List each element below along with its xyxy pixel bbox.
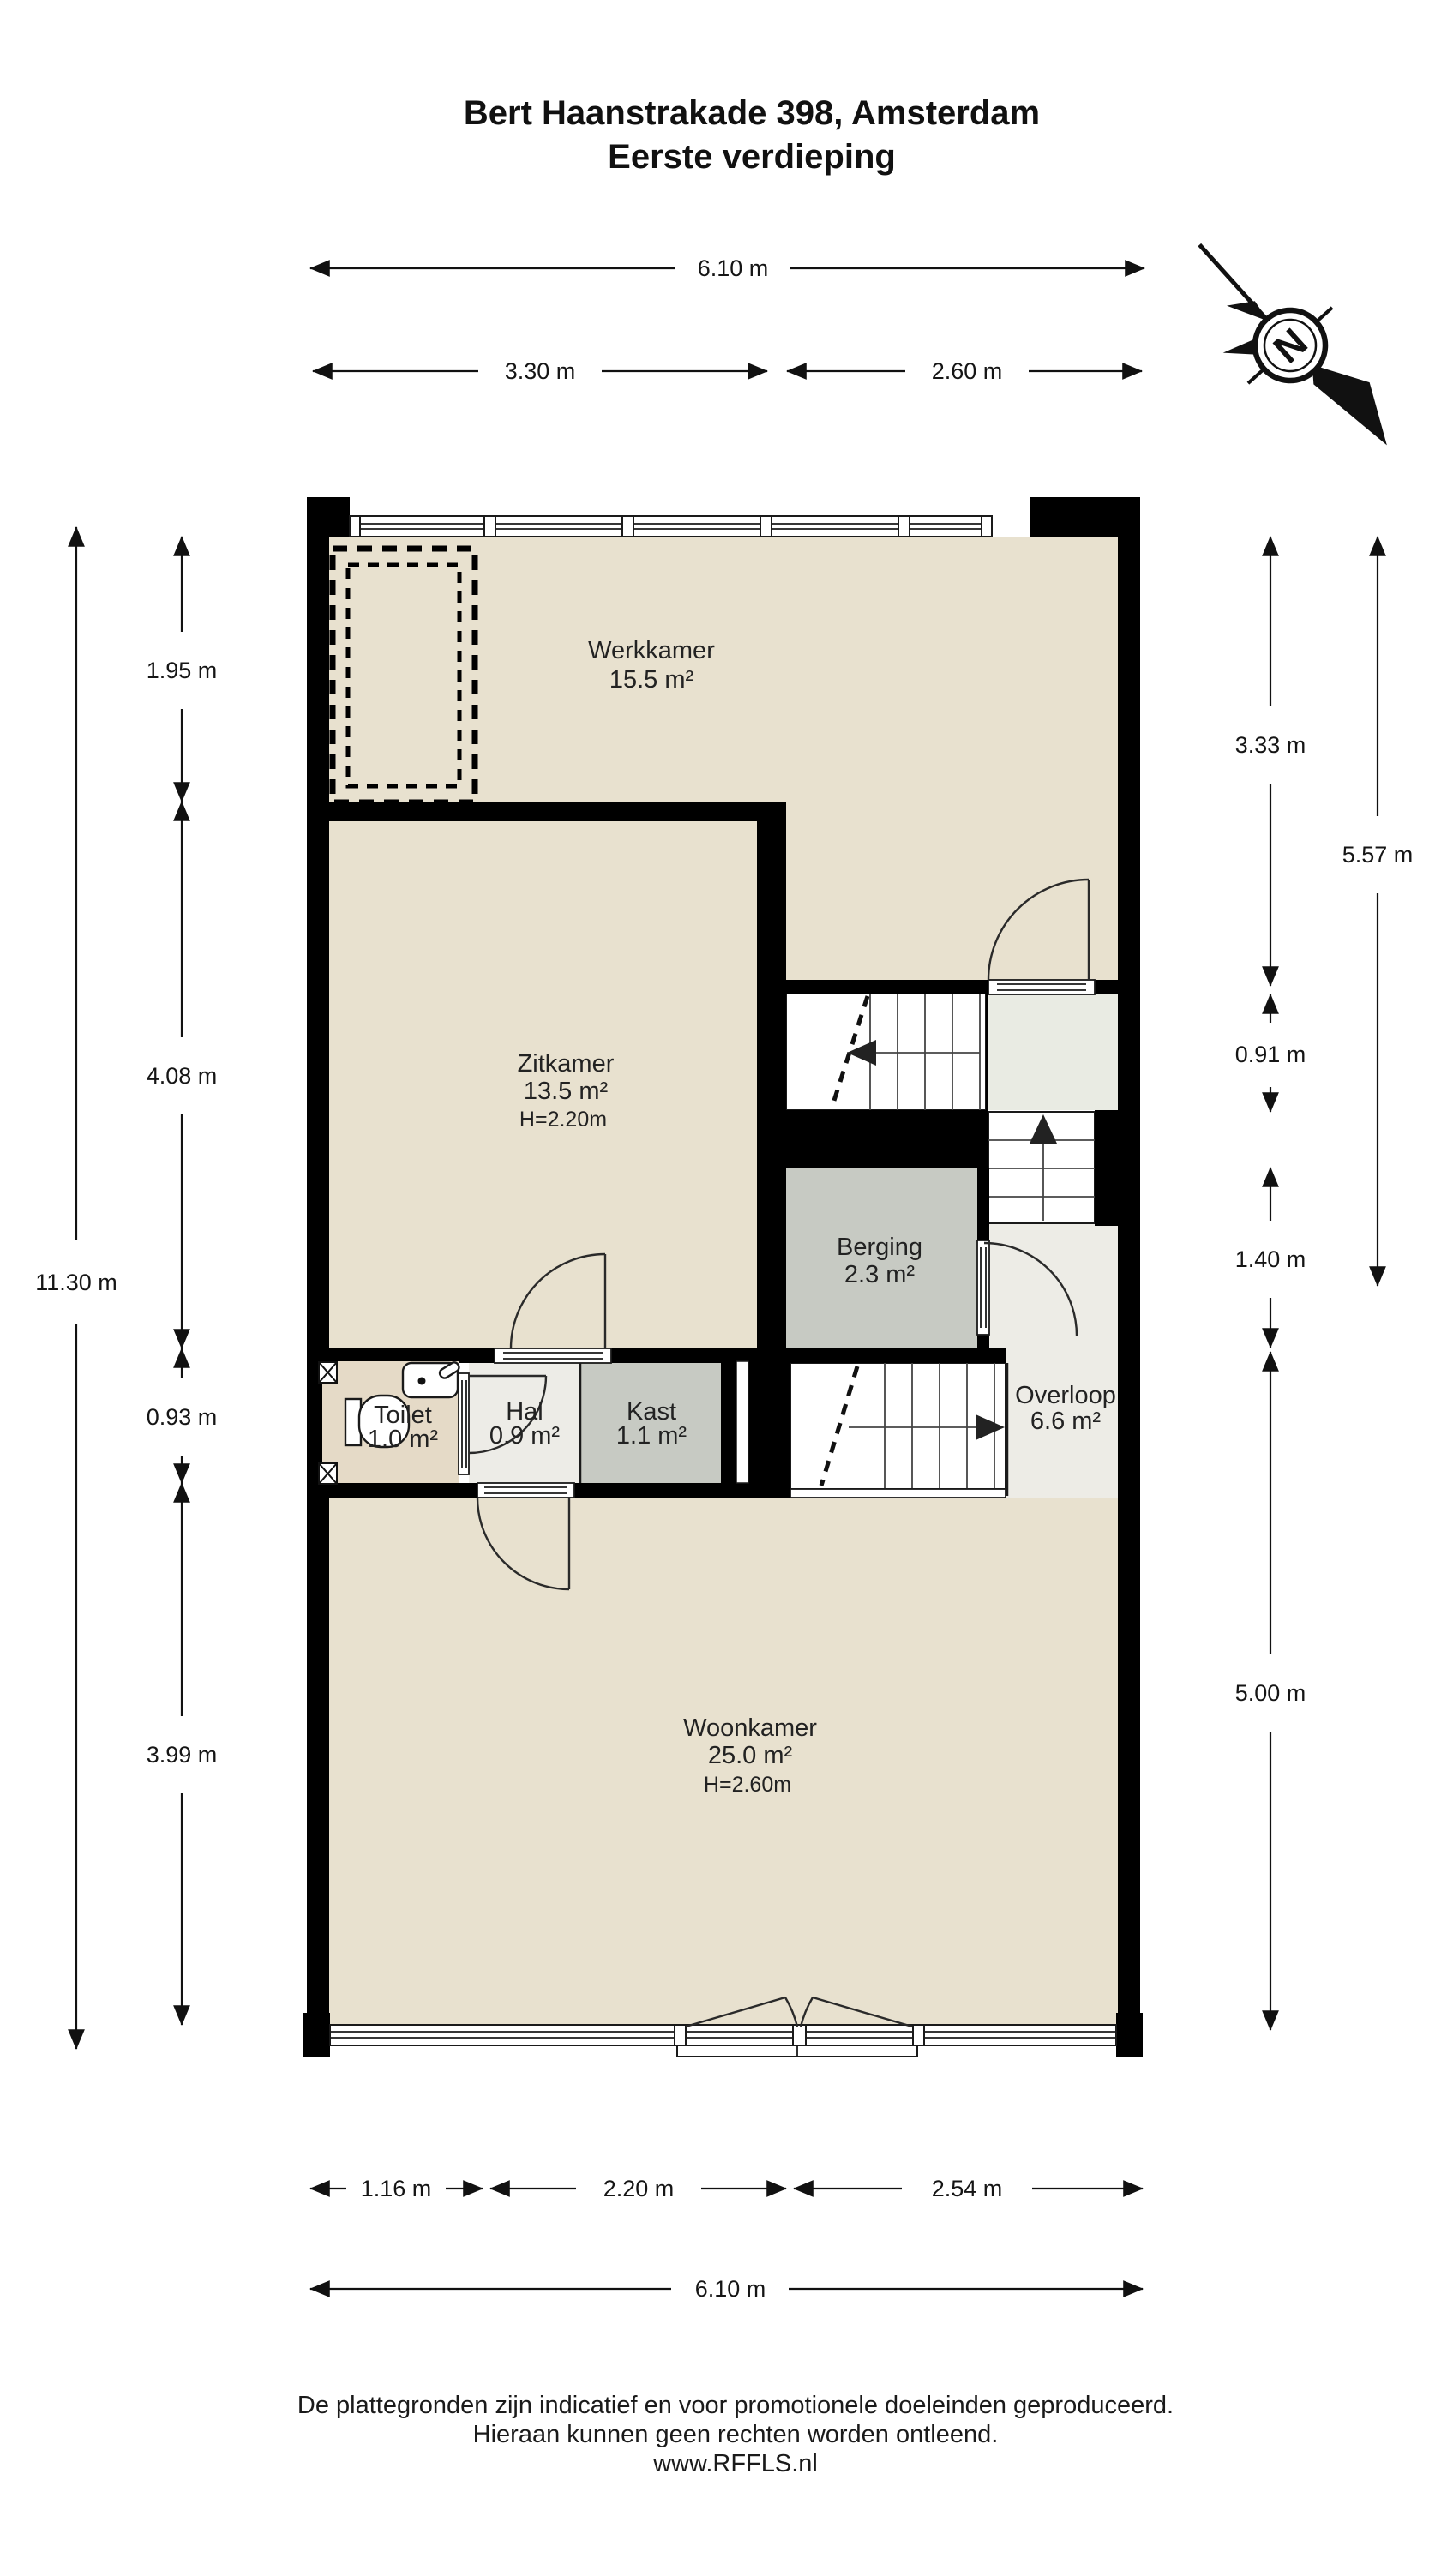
svg-text:5.57 m: 5.57 m — [1342, 842, 1414, 868]
room-label-zitkamer: Zitkamer 13.5 m² H=2.20m — [518, 1050, 615, 1132]
zitkamer-area: 13.5 m² — [524, 1078, 609, 1105]
dimension-top-left: 3.30 m — [313, 358, 767, 384]
zitkamer-ceiling: H=2.20m — [519, 1108, 607, 1132]
dimension-bottom-total: 6.10 m — [310, 2276, 1143, 2302]
window-mullion — [913, 2025, 924, 2045]
woonkamer-name: Woonkamer — [683, 1714, 817, 1742]
landing-floor — [988, 993, 1118, 1110]
washbasin-icon — [403, 1360, 460, 1397]
dimension-left-seg3: 0.93 m — [147, 1348, 218, 1483]
svg-text:6.10 m: 6.10 m — [698, 255, 769, 281]
title-floor: Eerste verdieping — [608, 138, 896, 176]
svg-text:2.60 m: 2.60 m — [932, 358, 1003, 384]
hal-area: 0.9 m² — [489, 1422, 561, 1450]
page-title: Bert Haanstrakade 398, Amsterdam Eerste … — [464, 94, 1040, 176]
window-mullion — [622, 516, 633, 537]
window-mullion — [793, 2025, 806, 2045]
svg-text:3.33 m: 3.33 m — [1235, 732, 1306, 758]
dimension-left-seg2: 4.08 m — [147, 802, 218, 1348]
floorplan-drawing: Bert Haanstrakade 398, Amsterdam Eerste … — [0, 0, 1447, 2572]
dimension-top-total: 6.10 m — [310, 255, 1144, 281]
overloop-floor — [989, 1223, 1118, 1498]
dimension-right-seg2: 0.91 m — [1235, 994, 1306, 1112]
dimension-top-right: 2.60 m — [787, 358, 1142, 384]
dimension-bottom-seg2: 2.20 m — [490, 2176, 786, 2201]
svg-text:2.20 m: 2.20 m — [603, 2176, 675, 2201]
overloop-name: Overloop — [1015, 1382, 1116, 1409]
dimension-bottom-seg3: 2.54 m — [794, 2176, 1143, 2201]
window-mullion — [898, 516, 910, 537]
svg-text:1.40 m: 1.40 m — [1235, 1246, 1306, 1272]
window-mullion — [350, 516, 360, 537]
dimension-right-seg3: 1.40 m — [1235, 1168, 1306, 1348]
window-mullion — [484, 516, 495, 537]
overloop-area: 6.6 m² — [1030, 1408, 1102, 1435]
svg-text:1.16 m: 1.16 m — [361, 2176, 432, 2201]
toilet-area: 1.0 m² — [368, 1426, 439, 1453]
window-mullion — [675, 2025, 686, 2045]
footer-website: www.RFFLS.nl — [652, 2450, 818, 2477]
woonkamer-ceiling: H=2.60m — [704, 1773, 791, 1797]
top-window-band — [350, 516, 992, 537]
stairs-upper-flight — [786, 993, 986, 1110]
disclaimer-footer: De plattegronden zijn indicatief en voor… — [297, 2392, 1174, 2477]
zitkamer-name: Zitkamer — [518, 1050, 615, 1078]
room-label-toilet: Toilet 1.0 m² — [368, 1402, 439, 1453]
footer-disclaimer-1: De plattegronden zijn indicatief en voor… — [297, 2392, 1174, 2419]
dimension-right-seg4: 5.00 m — [1235, 1352, 1306, 2030]
svg-text:5.00 m: 5.00 m — [1235, 1680, 1306, 1706]
svg-text:2.54 m: 2.54 m — [932, 2176, 1003, 2201]
exterior-threshold — [677, 2045, 917, 2057]
dimension-right-outer: 5.57 m — [1342, 537, 1414, 1286]
room-label-berging: Berging 2.3 m² — [837, 1234, 922, 1288]
title-address: Bert Haanstrakade 398, Amsterdam — [464, 94, 1040, 132]
stairs-lower-flight — [790, 1363, 1006, 1498]
dimension-left-seg1: 1.95 m — [147, 537, 218, 802]
footer-disclaimer-2: Hieraan kunnen geen rechten worden ontle… — [473, 2421, 999, 2448]
window-mullion — [760, 516, 772, 537]
svg-text:3.30 m: 3.30 m — [505, 358, 576, 384]
dimension-left-total: 11.30 m — [35, 527, 117, 2049]
svg-text:3.99 m: 3.99 m — [147, 1742, 218, 1768]
north-compass-icon: N — [1157, 207, 1425, 486]
dimension-left-seg4: 3.99 m — [147, 1483, 218, 2025]
kast-area: 1.1 m² — [616, 1422, 687, 1450]
svg-text:0.93 m: 0.93 m — [147, 1404, 218, 1430]
werkkamer-name: Werkkamer — [588, 637, 715, 664]
room-floors — [329, 537, 1118, 2025]
floorplan-page: Bert Haanstrakade 398, Amsterdam Eerste … — [0, 0, 1447, 2572]
berging-area: 2.3 m² — [844, 1261, 916, 1288]
dimension-right-seg1: 3.33 m — [1235, 537, 1306, 986]
svg-text:1.95 m: 1.95 m — [147, 658, 218, 683]
svg-text:0.91 m: 0.91 m — [1235, 1042, 1306, 1067]
svg-text:4.08 m: 4.08 m — [147, 1063, 218, 1089]
dimension-bottom-seg1: 1.16 m — [310, 2176, 483, 2201]
werkkamer-area: 15.5 m² — [609, 666, 694, 694]
window-mullion — [982, 516, 992, 537]
woonkamer-area: 25.0 m² — [708, 1742, 793, 1769]
svg-text:6.10 m: 6.10 m — [695, 2276, 766, 2302]
svg-text:11.30 m: 11.30 m — [35, 1270, 117, 1295]
stairs-middle-flight — [988, 1112, 1095, 1223]
berging-name: Berging — [837, 1234, 922, 1261]
